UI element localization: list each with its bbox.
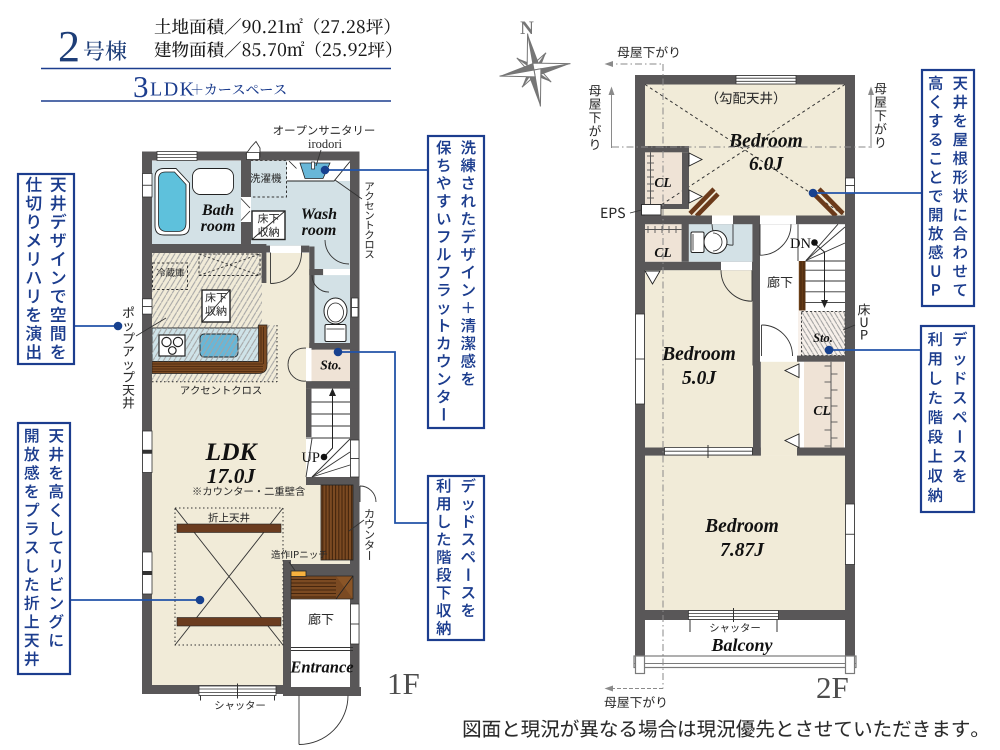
svg-text:room: room [201,218,236,235]
svg-text:Sto.: Sto. [320,358,341,373]
svg-text:N: N [520,18,534,39]
svg-text:Bedroom: Bedroom [728,131,803,152]
svg-text:2: 2 [58,22,80,71]
svg-text:room: room [302,222,337,239]
svg-text:irodori: irodori [308,137,343,151]
svg-text:UP: UP [301,450,320,466]
svg-text:Sto.: Sto. [813,331,833,345]
svg-text:3: 3 [133,69,149,104]
svg-text:Entrance: Entrance [289,658,353,677]
svg-text:Bedroom: Bedroom [704,516,779,537]
svg-text:5.0J: 5.0J [682,368,717,389]
svg-text:6.0J: 6.0J [749,154,784,175]
svg-text:Balcony: Balcony [711,635,774,655]
svg-text:DN: DN [790,236,811,252]
svg-text:LDK: LDK [205,437,259,466]
svg-text:17.0J: 17.0J [207,464,257,488]
svg-text:CL: CL [813,403,830,418]
svg-text:Bedroom: Bedroom [661,344,736,365]
svg-text:Wash: Wash [301,206,337,223]
svg-text:1F: 1F [387,666,420,701]
svg-text:Bath: Bath [201,202,234,219]
svg-text:LDK: LDK [150,79,196,101]
svg-text:7.87J: 7.87J [720,540,765,561]
svg-text:2F: 2F [816,670,849,705]
